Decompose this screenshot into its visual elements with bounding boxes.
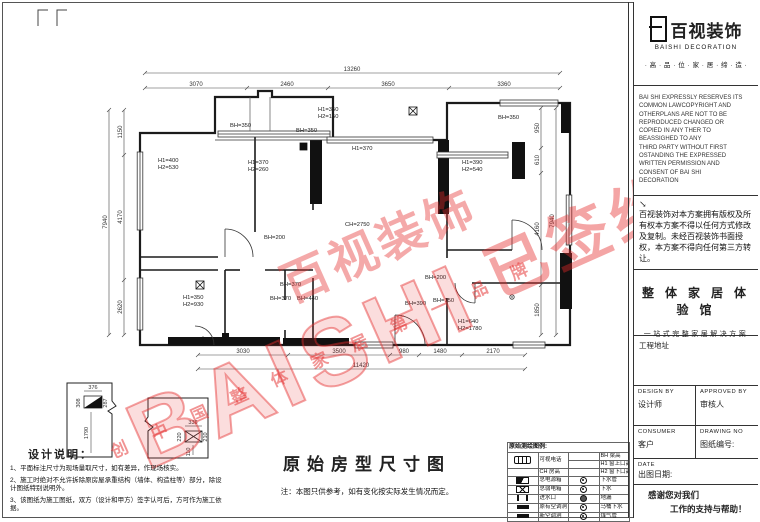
room-height-icon — [508, 469, 539, 477]
legend-label: BH 梁高 — [599, 453, 630, 461]
dim-right-seg: 1850 — [535, 303, 541, 317]
thanks-note: 感谢您对我们 工作的支持与帮助！ — [634, 485, 758, 515]
label-bh390: BH=390 — [405, 301, 426, 307]
floor-drain-legend-icon — [569, 494, 600, 503]
detail-dim: 210 — [203, 432, 209, 441]
dim-top-seg: 2460 — [280, 82, 294, 88]
consumer-cell: CONSUMER 客户 — [634, 426, 696, 459]
legend-label: 地漏 — [599, 494, 630, 503]
title-block-table: DESIGN BY 设计师 APPROVED BY 审核人 CONSUMER 客… — [634, 386, 758, 515]
dim-left-seg: 2620 — [118, 300, 124, 314]
legend-label: 下水 — [599, 485, 630, 494]
label-right-bed: H2=540 — [462, 167, 482, 173]
window-top-icon — [569, 461, 600, 469]
design-notes: 设计说明： 1、平面标注尺寸为现场量取尺寸，如有差异，作现场核实。 2、施工时绝… — [10, 446, 222, 517]
brand-slogan: 整 体 家 居 体 验 馆 一站式完整家居解决方案 — [634, 270, 758, 336]
legend-label: CH 房高 — [538, 469, 569, 477]
label-kitchen: H1=350 — [183, 295, 203, 301]
legend-label: 原有空调洞 — [538, 503, 569, 512]
dim-top-seg: 3650 — [381, 82, 395, 88]
outer-walls — [140, 91, 570, 345]
project-address-label: 工程地址 — [639, 341, 669, 350]
detail-dim: 376 — [88, 385, 97, 391]
legend-label: 总电源箱 — [538, 477, 569, 486]
dim-bottom-seg: 2170 — [486, 349, 500, 355]
label-balcony: H2=150 — [318, 114, 338, 120]
label-mid-left: H1=370 — [248, 160, 268, 166]
slogan-main: 整 体 家 居 体 验 馆 — [639, 284, 753, 318]
label-living-window: H1=370 — [352, 146, 372, 152]
label-entry: H2=1780 — [458, 326, 482, 332]
drawing-no-cell: DRAWING NO 图纸编号: — [696, 426, 758, 459]
label-mid-left: H2=260 — [248, 167, 268, 173]
consumer-label: CONSUMER — [638, 429, 691, 435]
dim-bottom-seg: 3500 — [332, 349, 346, 355]
label-bh440: BH=440 — [297, 296, 318, 302]
legend-label: H1 窗上口高 — [599, 461, 630, 469]
date-label: DATE — [638, 462, 754, 468]
weak-current-box-icon — [508, 485, 539, 494]
label-bh350: BH=350 — [498, 115, 519, 121]
brand-tagline: · 高 · 品 · 位 · 家 · 居 · 缔 · 造 · — [639, 59, 753, 69]
brand-name-cn: 百视装饰 — [671, 17, 743, 42]
dim-top-seg: 3070 — [189, 82, 203, 88]
legend-title: 原始测绘图例: — [508, 443, 630, 453]
design-by-label: DESIGN BY — [638, 389, 691, 395]
label-right-bed: H1=390 — [462, 160, 482, 166]
dim-left-overall: 7940 — [103, 215, 109, 229]
water-inlet-icon — [508, 494, 539, 503]
copyright-english: BAI SHI EXPRESSLY RESERVES ITS COMMON LA… — [634, 86, 758, 196]
design-notes-heading: 设计说明： — [28, 446, 222, 462]
drain-icon — [569, 485, 600, 494]
balcony-dividers — [250, 97, 270, 131]
label-bh200: BH=200 — [264, 235, 285, 241]
design-note-item: 3、该图纸为施工图纸，双方（设计和甲方）签字认可后，方可作为施工依据。 — [10, 497, 222, 514]
date-cell: DATE 出图日期: — [634, 459, 758, 485]
floor-drain-icon — [510, 295, 514, 299]
label-bh200: BH=200 — [425, 275, 446, 281]
label-entry: H1=640 — [458, 319, 478, 325]
interior-walls — [140, 133, 570, 345]
brand-header: 百视装饰 BAISHI DECORATION · 高 · 品 · 位 · 家 ·… — [634, 2, 758, 86]
drawing-note: 注：本图只供参考，如有变化按实际发生情况而定。 — [232, 486, 502, 497]
slogan-sub: 一站式完整家居解决方案 — [639, 329, 753, 339]
designer-cell: DESIGN BY 设计师 — [634, 386, 696, 426]
design-note-item: 1、平面标注尺寸为现场量取尺寸，如有差异，作现场核实。 — [10, 465, 222, 474]
copyright-chinese: ↘ 百视装饰对本方案拥有版权及所有权本方案不得以任何方式修改及复制。未经百视装饰… — [634, 196, 758, 270]
detail-dim: 1790 — [84, 427, 90, 439]
dim-right-seg: 4160 — [535, 222, 541, 236]
legend-label: 马桶下水 — [599, 503, 630, 512]
approver-value: 审核人 — [700, 399, 754, 410]
dim-left-seg: 4170 — [118, 210, 124, 224]
dim-top-overall: 13260 — [344, 67, 361, 73]
beam-height-icon — [569, 453, 600, 461]
detail-dim: 220 — [177, 432, 183, 441]
drawing-no-value: 图纸编号: — [700, 439, 754, 450]
drawing-title: 原始房型尺寸图 — [232, 450, 502, 475]
power-box-icon — [508, 477, 539, 486]
legend-label: 可视电话 — [538, 453, 569, 469]
legend-label: H2 窗下口高 — [599, 469, 630, 477]
dim-right-overall: 7940 — [550, 214, 556, 228]
detail-1-labels: 376 308 287 1790 — [76, 385, 109, 439]
drain-pipe-icon — [569, 477, 600, 486]
dim-right-seg: 610 — [535, 154, 541, 165]
detail-dim: 336 — [188, 420, 197, 426]
legend-label: 进水口 — [538, 494, 569, 503]
brand-panel: 百视装饰 BAISHI DECORATION · 高 · 品 · 位 · 家 ·… — [633, 2, 758, 518]
thanks-line2: 工作的支持与帮助！ — [670, 503, 752, 515]
label-bh370: BH=370 — [270, 296, 291, 302]
copyright-chinese-text: 百视装饰对本方案拥有版权及所有权本方案不得以任何方式修改及复制。未经百视装饰书面… — [639, 210, 751, 263]
approved-by-label: APPROVED BY — [700, 389, 754, 395]
thanks-line1: 感谢您对我们 — [648, 489, 752, 501]
brand-name-en: BAISHI DECORATION — [639, 44, 753, 51]
label-kitchen: H2=930 — [183, 302, 203, 308]
old-ac-hole-icon — [508, 503, 539, 512]
label-left-bed: H2=530 — [158, 165, 178, 171]
label-ceiling-height: CH=2750 — [345, 222, 370, 228]
dim-top-seg: 3360 — [497, 82, 511, 88]
dim-bottom-seg: 3030 — [236, 349, 250, 355]
detail-dim: 287 — [103, 398, 109, 407]
project-address: 工程地址 — [634, 336, 758, 386]
legend-label: 总弱电箱 — [538, 485, 569, 494]
dim-left-seg: 1150 — [118, 125, 124, 139]
label-bh350: BH=350 — [230, 123, 251, 129]
detail-dim: 308 — [76, 398, 82, 407]
legend-label: 下水管 — [599, 477, 630, 486]
dim-right-seg: 950 — [535, 122, 541, 133]
toilet-drain-icon — [569, 503, 600, 512]
drawing-no-label: DRAWING NO — [700, 429, 754, 435]
design-note-item: 2、施工时绝对不允许拆除原房屋承重结构（墙体、构造柱等）部分，除设计图纸特别说明… — [10, 477, 222, 494]
arrow-icon: ↘ — [639, 200, 753, 209]
videophone-icon — [508, 453, 539, 469]
legend-table: 原始测绘图例: 可视电话 BH 梁高 H1 窗上口高 CH 房高 H2 窗下口高… — [507, 442, 630, 522]
drawing-sheet: { "watermark": { "big": "BAISHI", "brand… — [0, 0, 760, 520]
label-bh150: BH=150 — [433, 298, 454, 304]
dim-bottom-seg: 1480 — [433, 349, 447, 355]
approver-cell: APPROVED BY 审核人 — [696, 386, 758, 426]
client-value: 客户 — [638, 439, 691, 450]
label-bh370: BH=370 — [280, 282, 301, 288]
designer-value: 设计师 — [638, 399, 691, 410]
corner-marks — [38, 10, 67, 26]
dim-bottom-overall: 11420 — [353, 363, 370, 369]
date-value: 出图日期: — [638, 469, 754, 480]
label-balcony: H1=350 — [318, 107, 338, 113]
window-sill-icon — [569, 469, 600, 477]
label-left-bed: H1=400 — [158, 158, 178, 164]
label-bh350: BH=350 — [296, 128, 317, 134]
dim-bottom-seg: 980 — [399, 349, 410, 355]
baishi-logo — [650, 16, 667, 42]
sheet-title-block: 原始房型尺寸图 注：本图只供参考，如有变化按实际发生情况而定。 — [232, 450, 502, 497]
